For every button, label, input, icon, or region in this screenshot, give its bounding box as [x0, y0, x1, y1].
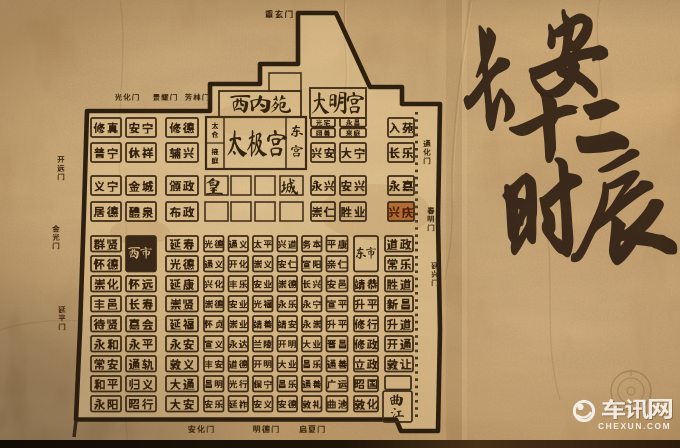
svg-text:CHEXUN.COM: CHEXUN.COM [598, 421, 671, 431]
